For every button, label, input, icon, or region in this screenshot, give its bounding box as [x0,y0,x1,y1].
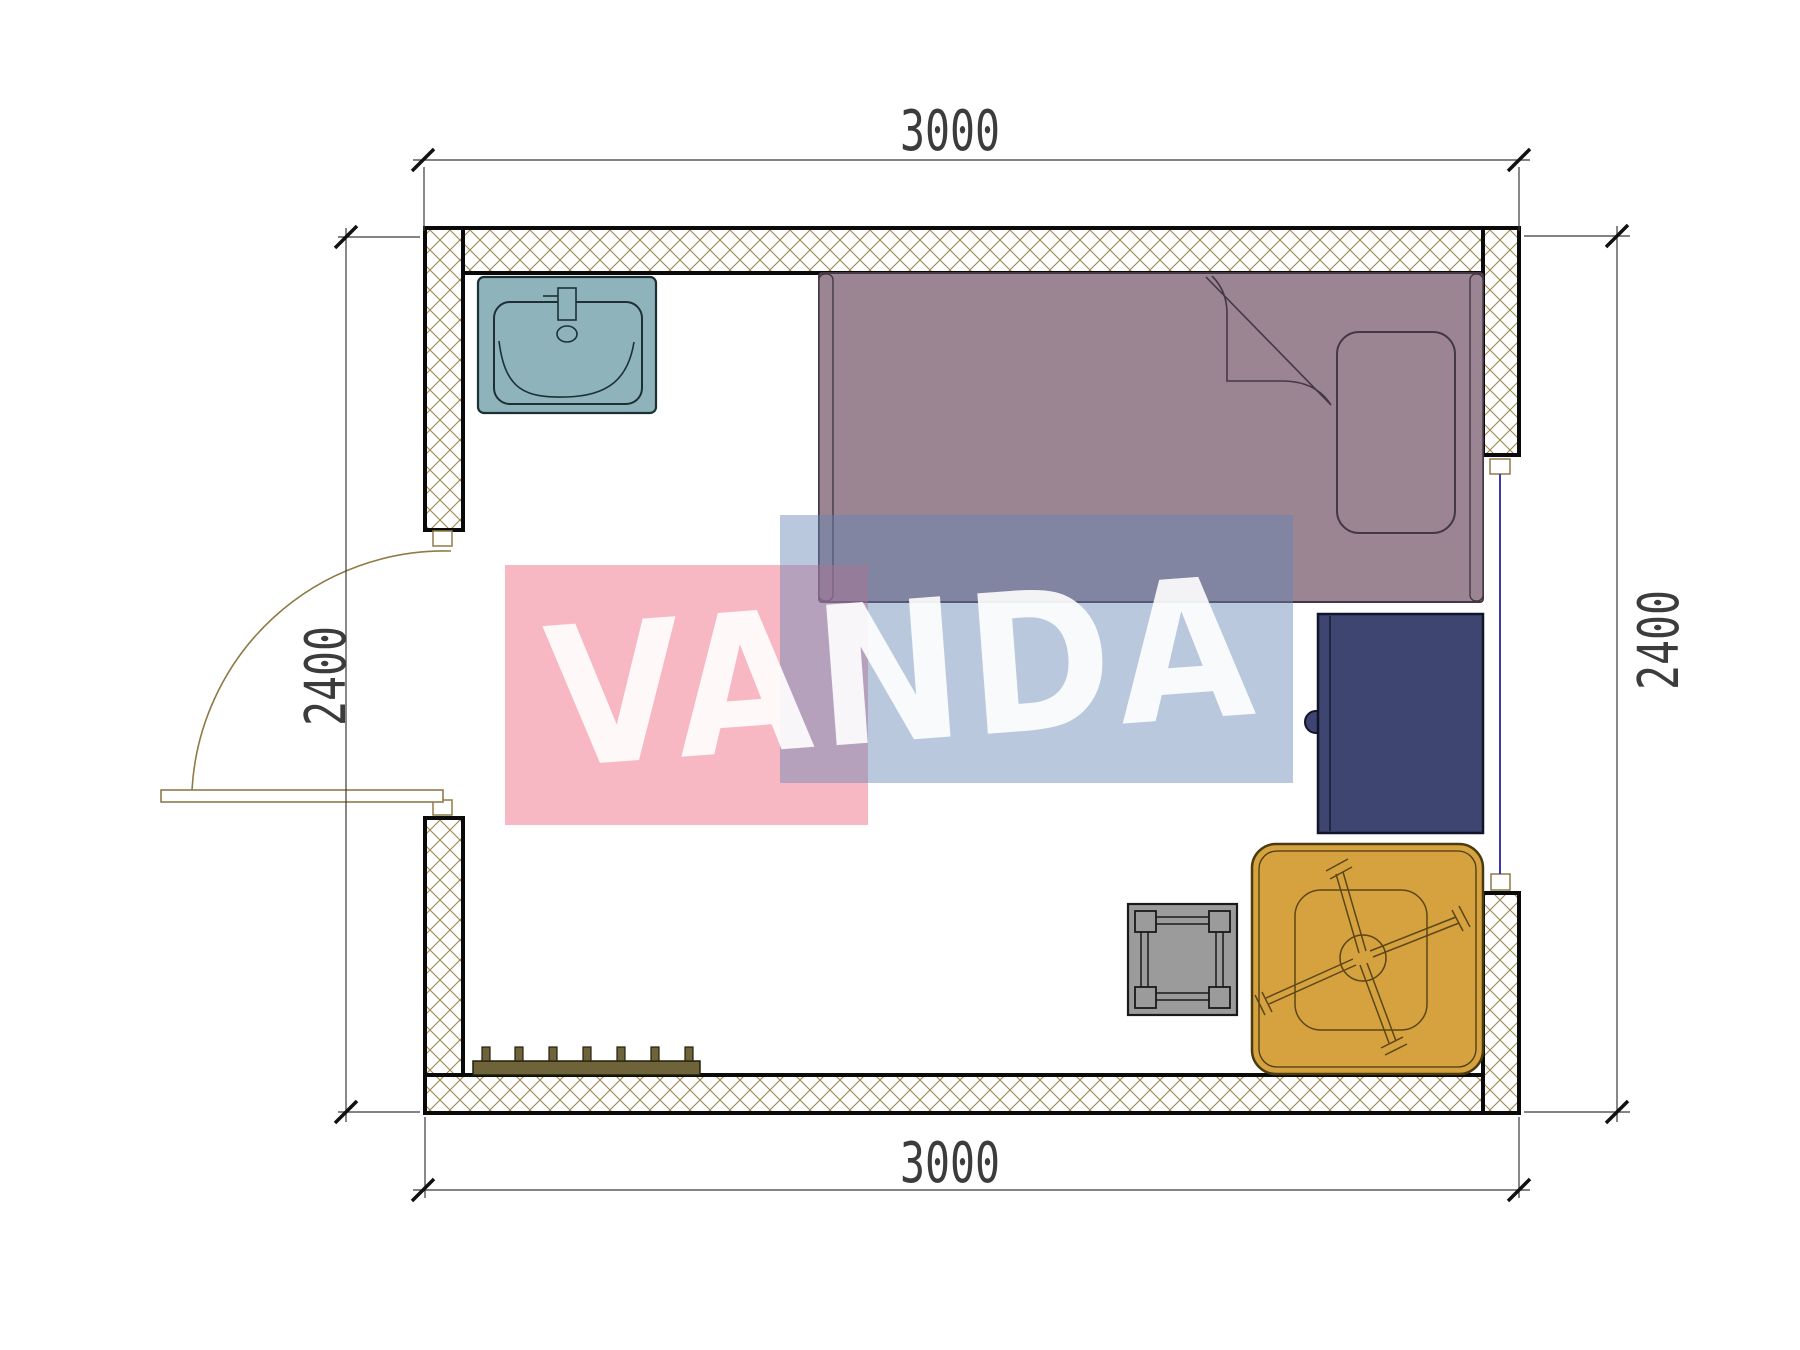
wall-right-lower [1483,893,1519,1113]
wall-left-lower [425,818,463,1113]
floor-plan-drawing: VANDA 3000 3000 2400 2400 [0,0,1800,1350]
stool-leg [1135,987,1156,1008]
wall-left-upper [425,228,463,530]
low-table [1252,844,1483,1074]
floor-plan-canvas: VANDA 3000 3000 2400 2400 [0,0,1800,1350]
radiator-bar [473,1061,700,1075]
dimension-label-right: 2400 [1627,590,1692,690]
wall-right-upper [1483,228,1519,455]
sink-faucet [558,288,576,320]
wall-top [425,228,1519,273]
door-jamb-top [433,531,452,546]
watermark: VANDA [505,515,1293,825]
radiator-bench [473,1047,700,1075]
wall-bottom [425,1075,1519,1113]
radiator-fins [482,1047,693,1061]
stool-leg [1209,987,1230,1008]
stool [1128,904,1237,1015]
table-top [1252,844,1483,1074]
wardrobe-body [1318,614,1483,833]
sink [478,277,656,413]
stool-leg [1209,911,1230,932]
dimension-label-bottom: 3000 [900,1131,1000,1196]
window-frame-top [1490,459,1510,474]
window-frame-bottom [1491,874,1510,890]
door-leaf [161,790,443,802]
wardrobe [1305,614,1483,833]
bed-footboard [1470,274,1483,601]
dimension-label-left: 2400 [294,626,359,726]
dimension-label-top: 3000 [900,99,1000,164]
stool-leg [1135,911,1156,932]
